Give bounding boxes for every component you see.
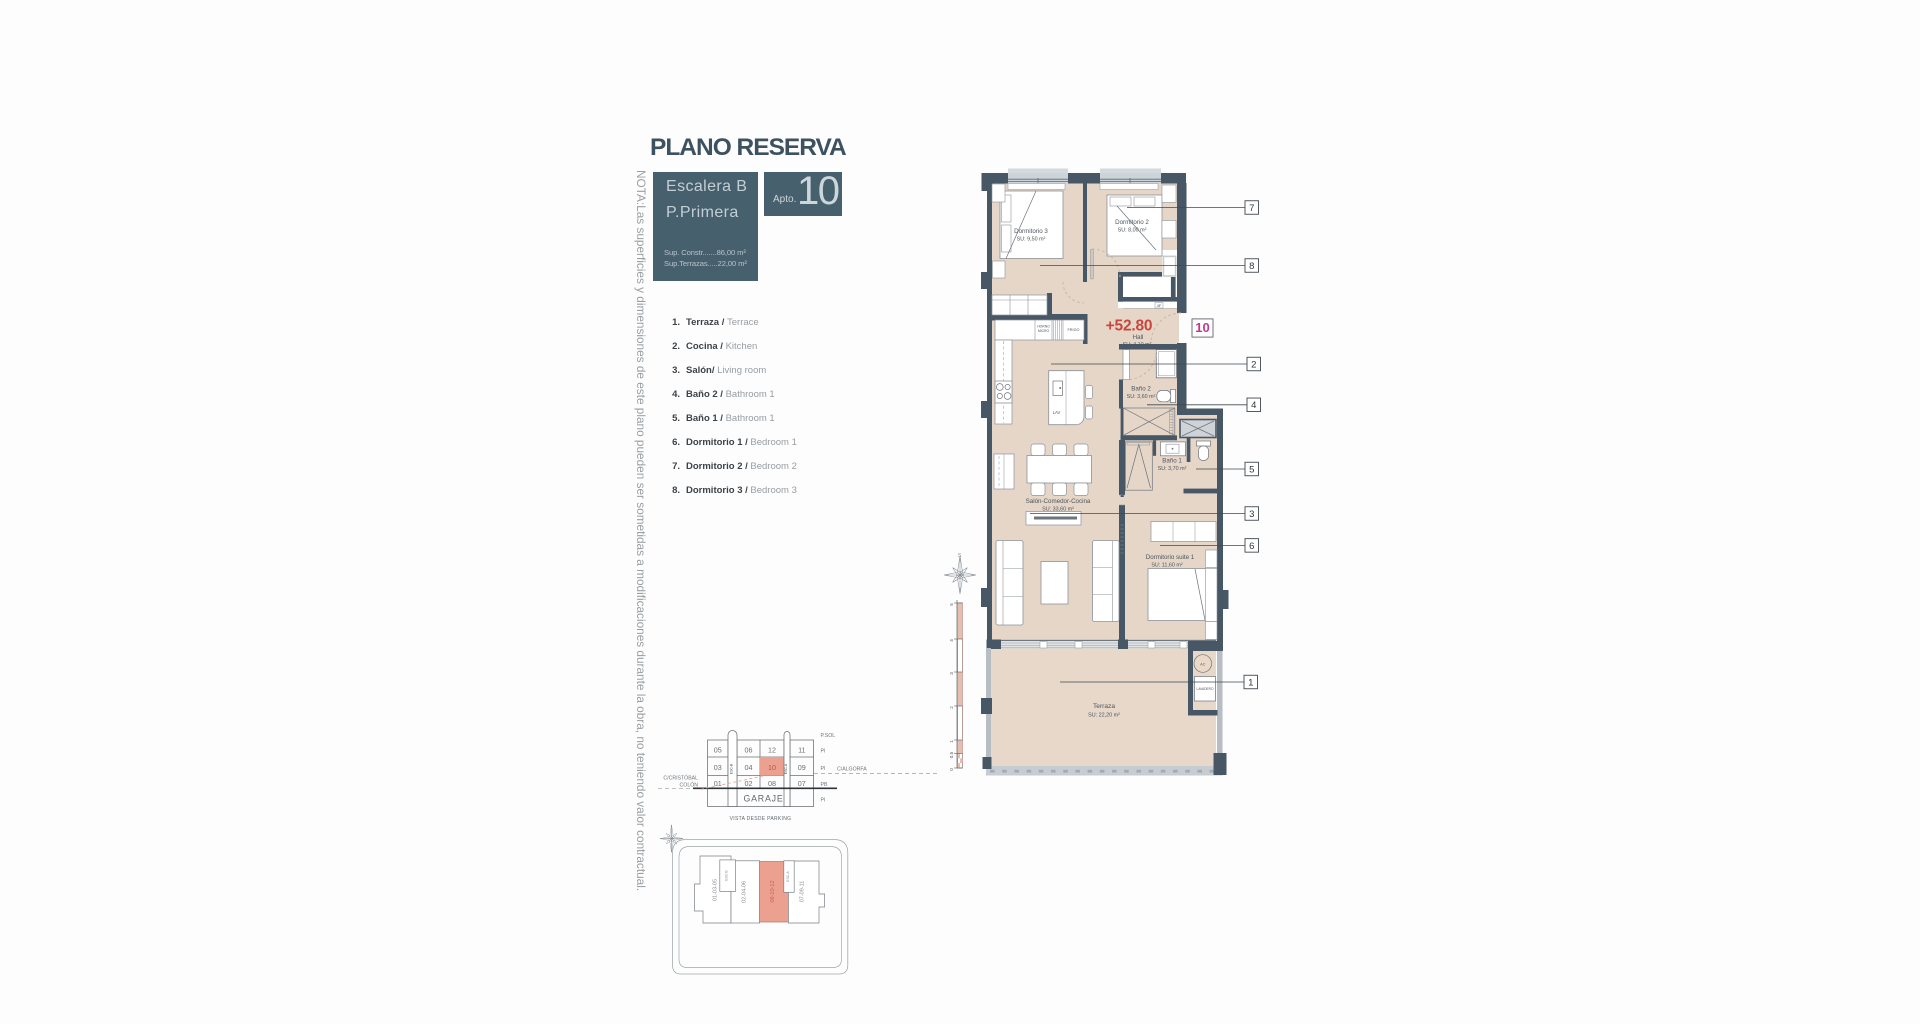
svg-text:04: 04	[745, 763, 753, 772]
svg-text:SU: 3,60 m²: SU: 3,60 m²	[1127, 394, 1156, 400]
svg-text:P.SOL: P.SOL	[821, 733, 836, 739]
svg-text:09: 09	[798, 763, 806, 772]
svg-text:GARAJE: GARAJE	[744, 794, 784, 804]
svg-text:Salón-Comedor-Cocina: Salón-Comedor-Cocina	[1026, 498, 1091, 505]
svg-text:Dormitorio 2: Dormitorio 2	[1115, 219, 1149, 226]
svg-text:Dormitorio 3: Dormitorio 3	[1014, 228, 1048, 235]
svg-text:1: 1	[1248, 677, 1253, 688]
svg-text:PI: PI	[821, 798, 826, 804]
svg-text:Baño 1: Baño 1	[1162, 458, 1182, 465]
svg-text:PI: PI	[821, 749, 826, 755]
svg-text:6: 6	[1249, 541, 1254, 552]
svg-text:2: 2	[1251, 359, 1256, 370]
svg-text:Hall: Hall	[1133, 334, 1144, 341]
svg-text:02-04-06: 02-04-06	[741, 881, 747, 903]
svg-text:AC: AC	[1200, 663, 1205, 667]
svg-text:C/ALGORFA: C/ALGORFA	[837, 767, 867, 773]
svg-text:10: 10	[1195, 320, 1209, 335]
svg-text:4: 4	[1251, 400, 1256, 411]
svg-text:Terraza: Terraza	[1093, 703, 1115, 710]
svg-text:LAV: LAV	[1053, 410, 1061, 415]
svg-text:12: 12	[768, 746, 776, 755]
svg-text:11: 11	[798, 746, 805, 755]
svg-text:3: 3	[949, 672, 954, 675]
svg-text:COLÓN: COLÓN	[680, 782, 699, 789]
svg-text:SU: 8,00 m²: SU: 8,00 m²	[1118, 228, 1147, 234]
svg-text:2: 2	[949, 706, 954, 709]
svg-text:0.5: 0.5	[949, 751, 954, 758]
svg-text:01: 01	[714, 779, 722, 788]
svg-text:PB: PB	[821, 782, 828, 788]
svg-text:06: 06	[745, 746, 753, 755]
svg-text:ESC-A: ESC-A	[784, 763, 788, 774]
svg-text:1: 1	[949, 740, 954, 743]
svg-text:Baño 2: Baño 2	[1131, 386, 1151, 393]
svg-text:PI: PI	[821, 766, 826, 772]
svg-text:SU: 22,20 m²: SU: 22,20 m²	[1088, 713, 1120, 719]
svg-text:MICRO: MICRO	[1038, 329, 1050, 333]
svg-text:SU: 11,60 m²: SU: 11,60 m²	[1151, 563, 1183, 569]
svg-text:3: 3	[1249, 509, 1254, 520]
svg-text:10: 10	[768, 763, 776, 772]
svg-text:SU: 9,50 m²: SU: 9,50 m²	[1017, 237, 1046, 243]
svg-text:05: 05	[714, 746, 722, 755]
svg-text:S: S	[958, 553, 962, 559]
svg-text:VISTA DESDE PARKING: VISTA DESDE PARKING	[730, 816, 792, 822]
svg-text:07: 07	[798, 779, 806, 788]
svg-text:C/CRISTÓBAL: C/CRISTÓBAL	[663, 775, 698, 782]
svg-text:ESC-B: ESC-B	[730, 763, 734, 774]
svg-text:Dormitorio suite 1: Dormitorio suite 1	[1146, 554, 1195, 561]
svg-text:ESC-B: ESC-B	[725, 870, 729, 881]
svg-text:4: 4	[949, 639, 954, 642]
svg-text:+52.80: +52.80	[1106, 318, 1153, 335]
svg-text:08-10-12: 08-10-12	[770, 880, 776, 902]
svg-text:5: 5	[949, 603, 954, 606]
svg-text:7: 7	[1249, 203, 1254, 214]
svg-text:01-03-05: 01-03-05	[713, 879, 719, 901]
svg-text:8: 8	[1249, 261, 1254, 272]
svg-text:ESC-A: ESC-A	[786, 871, 790, 882]
svg-text:03: 03	[714, 763, 722, 772]
svg-text:SU: 3,70 m²: SU: 3,70 m²	[1158, 466, 1187, 472]
svg-text:5: 5	[1249, 464, 1254, 475]
svg-text:4F: 4F	[1157, 303, 1162, 308]
svg-text:0: 0	[949, 768, 954, 771]
svg-text:FRIGO: FRIGO	[1067, 328, 1079, 332]
svg-text:02: 02	[745, 779, 753, 788]
svg-text:07-09-11: 07-09-11	[800, 881, 806, 903]
svg-text:HORNO: HORNO	[1037, 325, 1050, 329]
svg-text:08: 08	[768, 779, 776, 788]
svg-text:SU: 4,10 m²: SU: 4,10 m²	[1123, 342, 1152, 348]
svg-text:LAVADERO: LAVADERO	[1197, 687, 1214, 691]
